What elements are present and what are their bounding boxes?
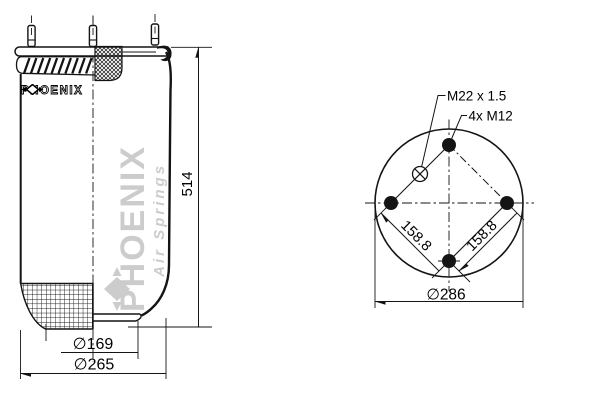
bead-hatch-band bbox=[17, 57, 96, 75]
bolt-square-side-dashed bbox=[449, 145, 507, 203]
bellows-right-edge bbox=[142, 52, 171, 316]
bolt-hole bbox=[442, 138, 456, 152]
air-fitting-symbol bbox=[413, 167, 428, 182]
mounting-stud bbox=[28, 14, 159, 47]
top-view bbox=[365, 96, 534, 309]
section-hatch-block bbox=[95, 47, 122, 81]
height-dimension-label: 514 bbox=[179, 171, 196, 196]
bolt-hole bbox=[500, 196, 514, 210]
bolt-spacing-label-right: 158.8 bbox=[464, 218, 501, 255]
engineering-drawing: 514 ∅169 ∅265 bbox=[0, 0, 600, 400]
piston-diameter-label: ∅169 bbox=[73, 336, 114, 353]
technical-drawing-canvas: PHOENIX Air Springs PHOENIX bbox=[0, 0, 600, 400]
bolt-spacing-label-left: 158.8 bbox=[397, 218, 434, 255]
bottom-plate-edge bbox=[136, 314, 141, 321]
bolts-label: 4x M12 bbox=[469, 109, 513, 124]
bolt-hole bbox=[384, 196, 398, 210]
piston-grid-section bbox=[21, 284, 93, 330]
bellows-diameter-label: ∅265 bbox=[74, 357, 115, 374]
leader-bolts bbox=[452, 116, 467, 139]
bolt-hole bbox=[442, 254, 456, 268]
air-fitting-label: M22 x 1.5 bbox=[447, 89, 506, 104]
bolt-circle-diameter-label: ∅286 bbox=[426, 287, 465, 304]
